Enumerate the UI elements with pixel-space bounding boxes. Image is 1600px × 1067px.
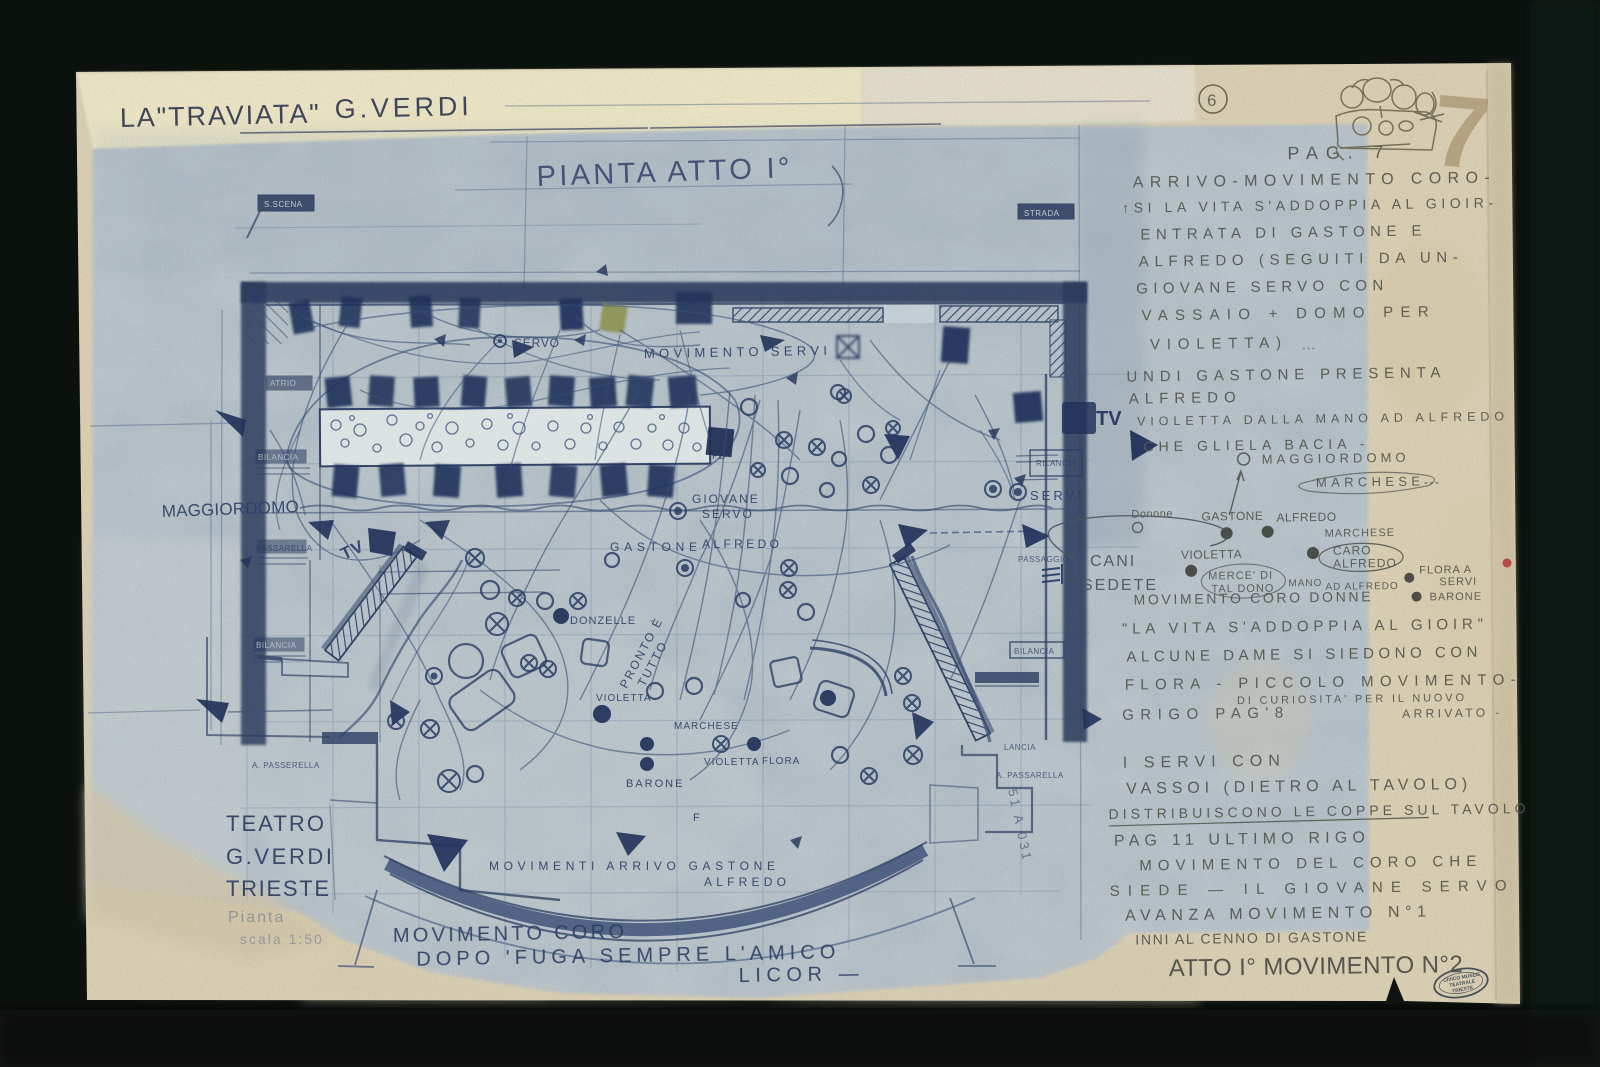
svg-text:ALFREDO: ALFREDO [704, 875, 789, 889]
svg-text:ALFREDO: ALFREDO [1276, 510, 1336, 525]
svg-text:PASSARELLA: PASSARELLA [256, 544, 313, 553]
svg-text:SEDETE: SEDETE [1082, 577, 1158, 594]
svg-text:7: 7 [1428, 73, 1494, 192]
svg-text:scala 1:50: scala 1:50 [240, 931, 324, 947]
svg-text:LA"TRAVIATA": LA"TRAVIATA" [120, 98, 321, 133]
svg-text:FLORA A: FLORA A [1419, 564, 1472, 577]
svg-text:GIOVANE: GIOVANE [692, 492, 760, 506]
svg-text:STRADA: STRADA [1024, 209, 1060, 218]
svg-text:MERCE' DI: MERCE' DI [1208, 570, 1273, 583]
svg-text:G.VERDI: G.VERDI [226, 844, 334, 869]
svg-text:Pianta: Pianta [228, 909, 285, 926]
svg-text:...: ... [1302, 337, 1316, 352]
svg-text:A. PASSARELLA: A. PASSARELLA [996, 771, 1064, 780]
svg-text:MARCHESE: MARCHESE [674, 721, 739, 732]
svg-text:SERVO: SERVO [702, 507, 754, 521]
svg-text:VIOLETTA: VIOLETTA [704, 757, 760, 768]
svg-text:MOVIMENTI ARRIVO GASTONE: MOVIMENTI ARRIVO GASTONE [489, 859, 779, 873]
svg-text:TRIESTE: TRIESTE [226, 876, 331, 901]
svg-text:ARRIVATO -: ARRIVATO - [1402, 705, 1500, 720]
svg-text:I SERVI CON: I SERVI CON [1123, 753, 1281, 772]
svg-text:ATRIO: ATRIO [270, 379, 296, 388]
svg-text:MAGGIORDOMO: MAGGIORDOMO [1262, 450, 1407, 467]
svg-text:GIOVANE SERVO CON: GIOVANE SERVO CON [1136, 277, 1384, 297]
svg-text:VIOLETTA: VIOLETTA [1181, 547, 1242, 562]
svg-text:VIOLETTA: VIOLETTA [596, 693, 652, 704]
svg-text:BARONE: BARONE [1429, 591, 1482, 604]
svg-text:TEATRO: TEATRO [226, 811, 326, 836]
svg-text:BARONE: BARONE [626, 778, 684, 790]
svg-text:CANI: CANI [1090, 553, 1136, 570]
svg-text:BILANCIA: BILANCIA [258, 453, 299, 462]
svg-text:LANCIA: LANCIA [1004, 743, 1036, 752]
svg-text:BILANCIA: BILANCIA [256, 641, 297, 650]
svg-text:G.VERDI: G.VERDI [334, 91, 470, 124]
svg-text:GASTONE: GASTONE [1201, 509, 1263, 524]
svg-text:VIOLETTA): VIOLETTA) [1150, 334, 1282, 353]
svg-text:A. PASSERELLA: A. PASSERELLA [252, 761, 320, 770]
svg-text:ALFREDO: ALFREDO [702, 537, 782, 551]
svg-text:SERVO: SERVO [514, 336, 562, 350]
svg-text:FLORA: FLORA [762, 756, 800, 767]
svg-text:TV: TV [1096, 408, 1122, 430]
svg-text:INNI AL CENNO DI GASTONE: INNI AL CENNO DI GASTONE [1135, 928, 1367, 947]
svg-text:Donone: Donone [1131, 508, 1173, 521]
svg-text:MOVIMENTO CORO: MOVIMENTO CORO [393, 921, 625, 947]
svg-text:SERVI: SERVI [1439, 576, 1477, 589]
svg-text:SERVI: SERVI [1030, 488, 1084, 503]
svg-text:ATTO I° MOVIMENTO N°2: ATTO I° MOVIMENTO N°2 [1169, 951, 1465, 982]
svg-text:MOVIMENTO CORO DONNE: MOVIMENTO CORO DONNE [1133, 588, 1371, 607]
svg-text:6: 6 [1207, 91, 1216, 110]
svg-text:F: F [693, 812, 700, 824]
svg-text:MARCHESE: MARCHESE [1325, 527, 1396, 540]
svg-text:LICOR —: LICOR — [738, 963, 860, 987]
svg-text:GASTONE: GASTONE [610, 540, 700, 554]
svg-text:DONZELLE: DONZELLE [570, 615, 636, 627]
svg-text:MANO: MANO [1288, 578, 1322, 589]
svg-text:BILANCIA: BILANCIA [1014, 647, 1055, 656]
svg-text:PASSAGGIO: PASSAGGIO [1018, 555, 1069, 564]
svg-text:S.SCENA: S.SCENA [264, 200, 303, 209]
svg-text:PAG 11 ULTIMO RIGO: PAG 11 ULTIMO RIGO [1114, 829, 1366, 850]
svg-text:RILANCIA: RILANCIA [1036, 459, 1077, 468]
